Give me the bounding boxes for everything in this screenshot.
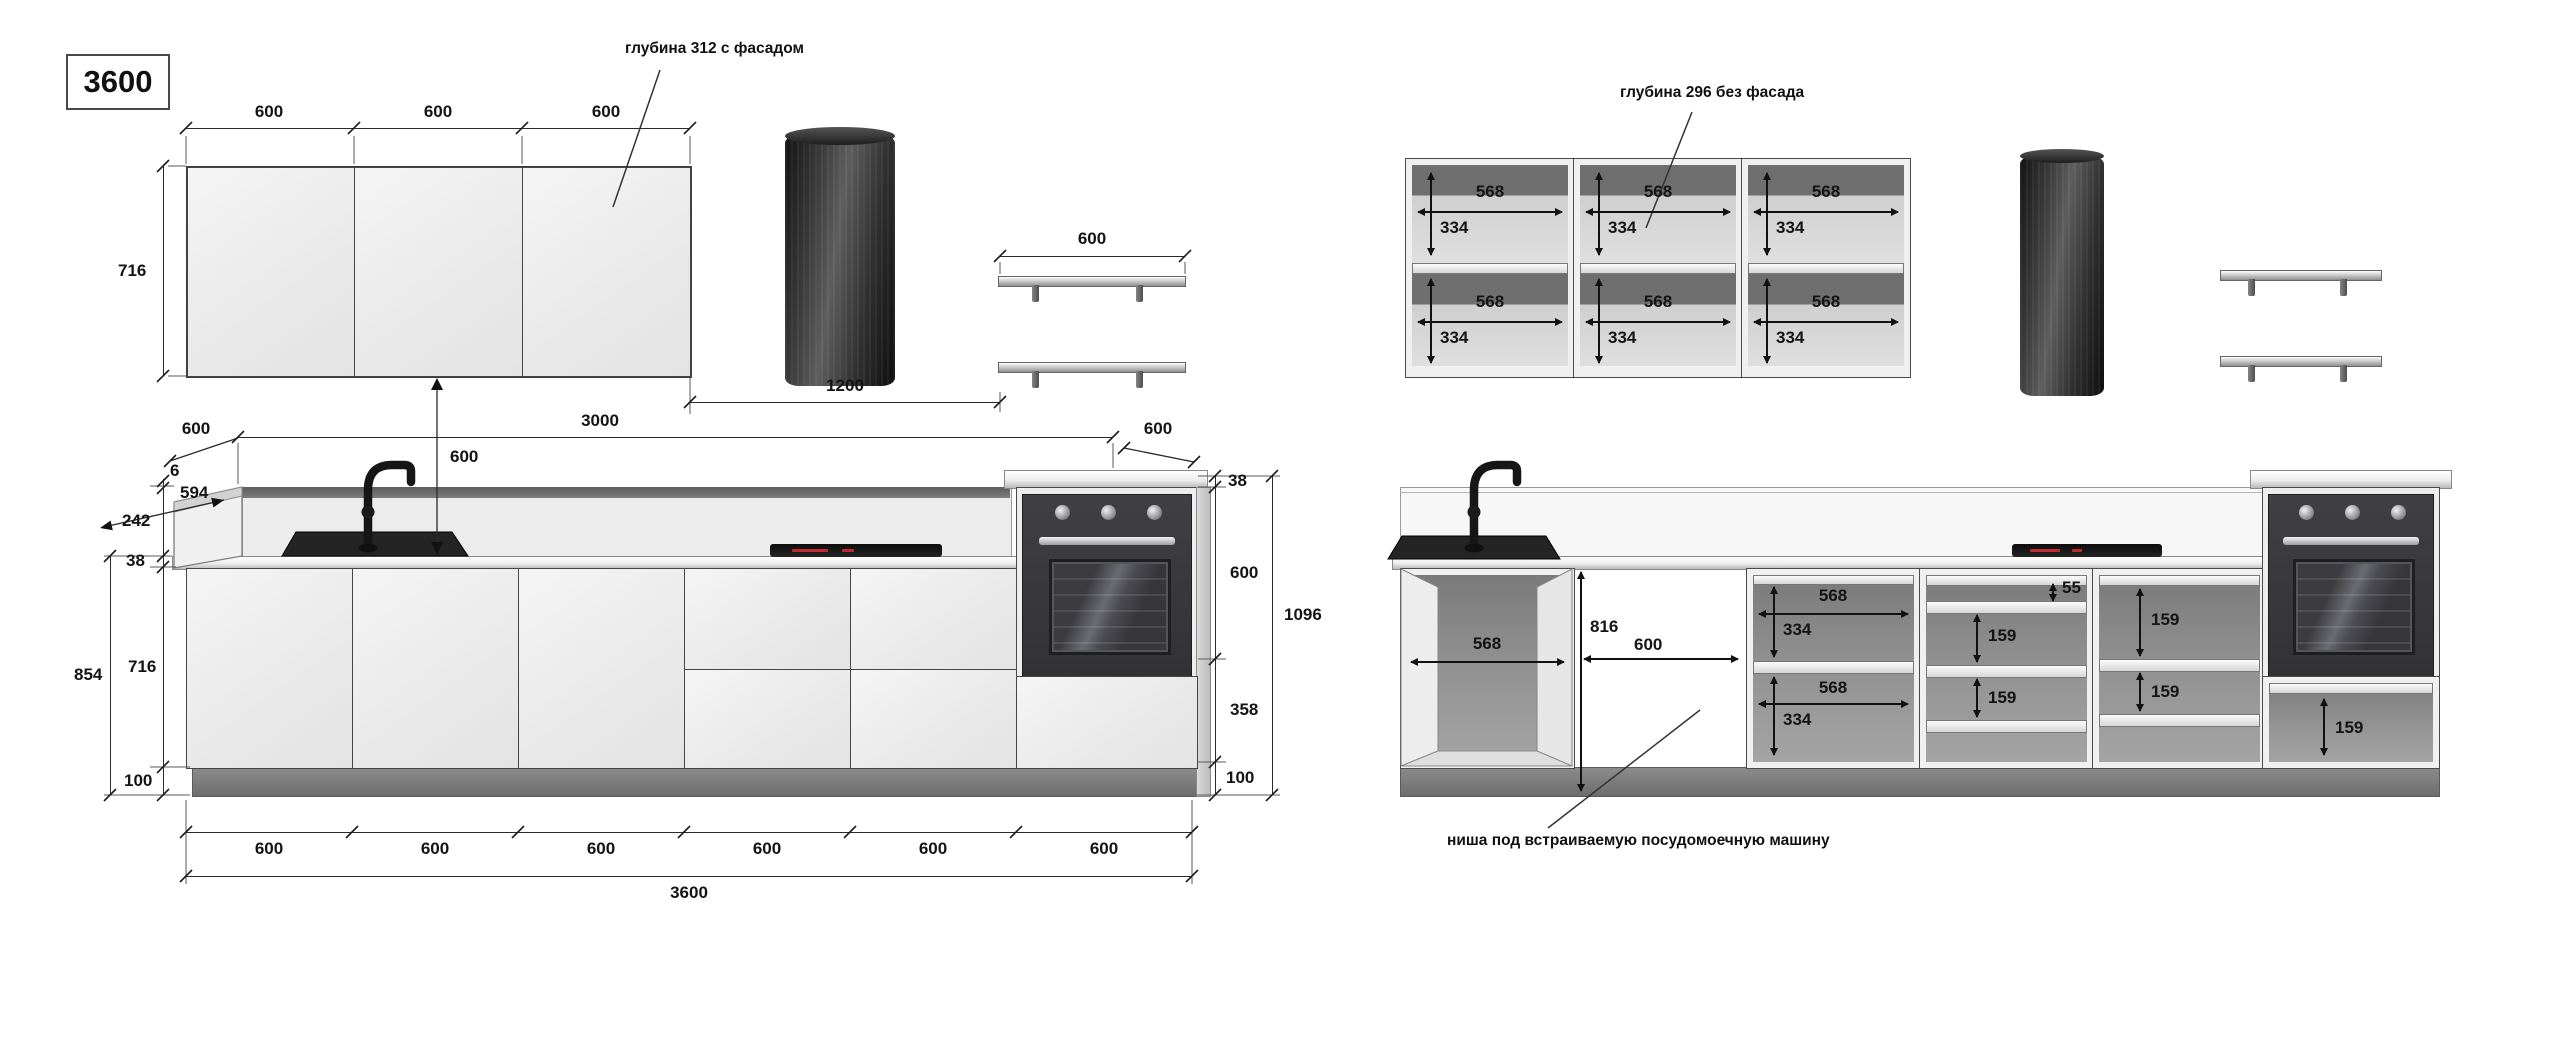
dim-niche-width: 600 [1634, 636, 1662, 653]
dim-module-3: 600 [587, 840, 615, 857]
dim-inner-width: 568 [1812, 183, 1840, 200]
height-arrow [1598, 173, 1600, 255]
arrowhead [431, 378, 443, 390]
leader-depth-with-facade [613, 70, 660, 207]
width-arrow [1418, 321, 1562, 323]
leader-dishwasher-niche [1548, 710, 1700, 828]
dim-plinth-height: 100 [124, 772, 152, 789]
dim-upper-width-3: 600 [592, 103, 620, 120]
dim-base-total-height: 854 [74, 666, 102, 683]
arrowhead [100, 521, 113, 531]
height-arrow [2139, 589, 2141, 656]
dim-tower-total: 1096 [1284, 606, 1322, 623]
kitchen-drawing-canvas: 3600 [0, 0, 2560, 1063]
dim-inner-height: 334 [1783, 621, 1811, 638]
dim-drawer-height: 159 [1988, 689, 2016, 706]
dim-tower-counter: 38 [1228, 472, 1247, 489]
dim-inner-height: 334 [1776, 329, 1804, 346]
dim-shelf-width: 600 [1078, 230, 1106, 247]
dim-counter-depth-right: 600 [1144, 420, 1172, 437]
annotation-depth-with-facade: глубина 312 с фасадом [625, 40, 804, 58]
width-arrow [1411, 661, 1564, 663]
dim-inner-height: 334 [1608, 329, 1636, 346]
dim-panel-thickness: 6 [170, 462, 179, 479]
dim-upstand-height: 242 [122, 512, 150, 529]
height-arrow [1773, 677, 1775, 755]
dim-base-door-height: 716 [128, 658, 156, 675]
height-arrow [1430, 279, 1432, 363]
height-arrow [1773, 587, 1775, 657]
dim-inner-height: 334 [1783, 711, 1811, 728]
dim-upper-height: 716 [118, 262, 146, 279]
dim-hood-span: 1200 [826, 377, 864, 394]
height-arrow [1598, 279, 1600, 363]
dim-module-5: 600 [919, 840, 947, 857]
dim-tower-drawer: 358 [1230, 701, 1258, 718]
dimension-overlay [0, 0, 2560, 1063]
dim-module-4: 600 [753, 840, 781, 857]
width-arrow [1586, 321, 1730, 323]
arrowhead [211, 498, 224, 508]
dim-inner-height: 334 [1440, 219, 1468, 236]
niche-height-arrow [1580, 572, 1582, 791]
diagonal-dim-lines [104, 438, 1194, 527]
dim-inner-height: 334 [1608, 219, 1636, 236]
dim-inner-width: 568 [1473, 635, 1501, 652]
dim-inner-width: 568 [1476, 183, 1504, 200]
width-arrow [1759, 703, 1908, 705]
dim-inner-width: 568 [1644, 293, 1672, 310]
dim-module-6: 600 [1090, 840, 1118, 857]
dim-drawer-height: 55 [2062, 579, 2081, 596]
dim-upper-width-2: 600 [424, 103, 452, 120]
dim-inner-width: 568 [1476, 293, 1504, 310]
dim-niche-height: 816 [1590, 618, 1618, 635]
width-arrow [1586, 211, 1730, 213]
height-arrow [1766, 173, 1768, 255]
height-arrow [1976, 679, 1978, 717]
annotation-depth-without-facade: глубина 296 без фасада [1620, 84, 1804, 102]
dim-inner-width: 568 [1812, 293, 1840, 310]
height-arrow [1430, 173, 1432, 255]
dim-module-2: 600 [421, 840, 449, 857]
dim-inner-width: 568 [1819, 679, 1847, 696]
annotation-dishwasher-niche: ниша под встраиваемую посудомоечную маши… [1447, 832, 1830, 850]
dim-drawer-height: 159 [1988, 627, 2016, 644]
dim-counter-run: 3000 [581, 412, 619, 429]
dim-tower-oven: 600 [1230, 564, 1258, 581]
dim-inner-height: 334 [1776, 219, 1804, 236]
height-arrow [2052, 584, 2054, 601]
dim-total-width: 3600 [670, 884, 708, 901]
dim-upstand-depth: 594 [180, 484, 208, 501]
niche-width-arrow [1584, 658, 1738, 660]
width-arrow [1759, 613, 1908, 615]
dim-inner-width: 568 [1644, 183, 1672, 200]
dim-inner-height: 334 [1440, 329, 1468, 346]
dim-module-1: 600 [255, 840, 283, 857]
dim-counter-to-upper: 600 [450, 448, 478, 465]
height-arrow [2323, 699, 2325, 755]
height-arrow [1976, 615, 1978, 662]
dim-tower-plinth: 100 [1226, 769, 1254, 786]
height-arrow [2139, 673, 2141, 711]
extension-lines [104, 136, 1280, 884]
dim-counter-thickness: 38 [126, 552, 145, 569]
dim-drawer-height: 159 [2335, 719, 2363, 736]
dim-drawer-height: 159 [2151, 611, 2179, 628]
width-arrow [1754, 211, 1898, 213]
dim-counter-depth-left: 600 [182, 420, 210, 437]
height-arrow [1766, 279, 1768, 363]
dim-upper-width-1: 600 [255, 103, 283, 120]
dim-inner-width: 568 [1819, 587, 1847, 604]
width-arrow [1418, 211, 1562, 213]
width-arrow [1754, 321, 1898, 323]
arrowhead [431, 542, 443, 554]
dim-drawer-height: 159 [2151, 683, 2179, 700]
